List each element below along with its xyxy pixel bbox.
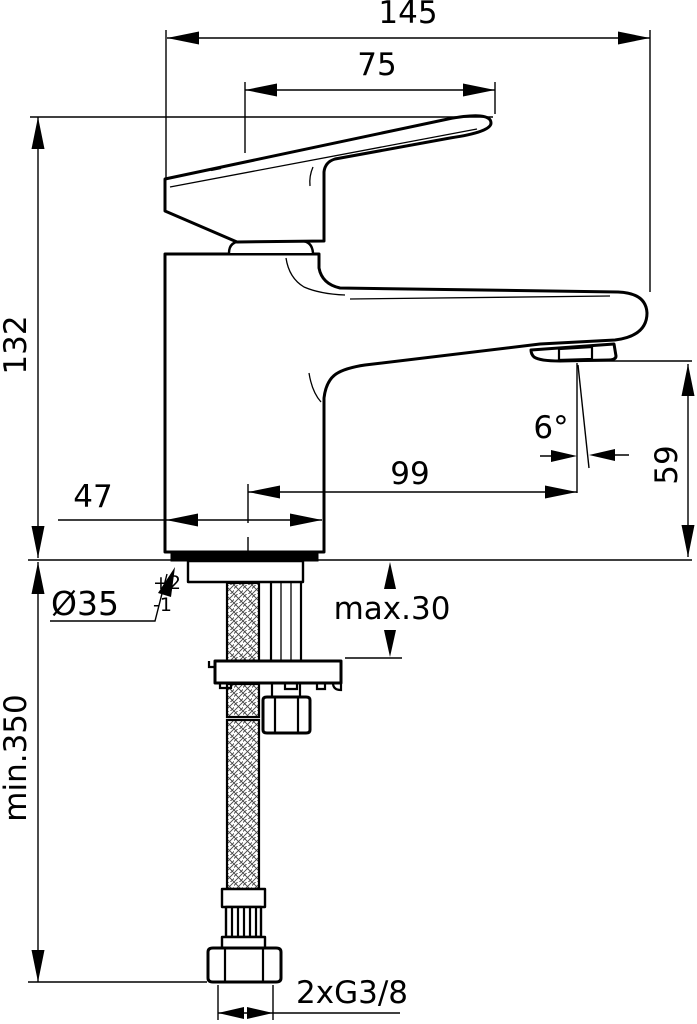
- label-spout-angle: 6°: [533, 410, 568, 446]
- mounting-stud-inner: [281, 583, 291, 660]
- arrow-145-right: [618, 32, 650, 45]
- arrow-145-left: [167, 32, 199, 45]
- arrow-99-right: [545, 486, 577, 499]
- label-spout-height: 59: [649, 445, 685, 484]
- technical-drawing-canvas: 145 75 132 47 99 6° 59 Ø35 +2 -1 max.30 …: [0, 0, 697, 1024]
- upper-washer: [188, 561, 303, 582]
- label-hole-diameter: Ø35: [51, 584, 119, 623]
- label-hole-tolerance-lower: -1: [153, 594, 172, 616]
- arrow-angle-right: [589, 449, 615, 461]
- dimension-lines: [38, 38, 688, 1013]
- braided-hose-lower: [227, 720, 259, 889]
- arrow-75-right: [463, 84, 495, 97]
- arrow-59-bottom: [682, 525, 695, 557]
- hose-ferrule-lower: [222, 937, 265, 948]
- arrow-75-left: [245, 84, 277, 97]
- label-spout-reach: 99: [390, 456, 429, 492]
- mounting-plate: [215, 661, 341, 683]
- extension-lines: [28, 30, 692, 1020]
- arrow-min350-bottom: [32, 950, 45, 982]
- hose-ferrule-upper: [222, 889, 265, 907]
- connection-nut: [208, 948, 281, 982]
- arrow-132-bottom: [32, 526, 45, 558]
- label-max-mounting-thickness: max.30: [334, 591, 451, 627]
- label-handle-projection: 75: [357, 47, 396, 83]
- arrow-max30-top: [384, 562, 396, 589]
- arrow-min350-top: [32, 562, 45, 594]
- braided-hose-upper: [227, 583, 259, 662]
- label-supply-connection: 2xG3/8: [296, 975, 408, 1011]
- arrow-angle-left: [551, 450, 577, 462]
- arrow-max30-bottom: [384, 630, 396, 657]
- arrowheads: [32, 32, 695, 1020]
- faucet-body-group: [165, 116, 647, 982]
- arrow-59-top: [682, 364, 695, 396]
- arrow-g38-right: [247, 1007, 273, 1019]
- label-hole-tolerance-upper: +2: [153, 572, 181, 594]
- arrow-132-top: [32, 117, 45, 149]
- label-min-hose-length: min.350: [0, 694, 34, 821]
- arrow-g38-left: [218, 1007, 244, 1019]
- aerator: [531, 344, 616, 361]
- mounting-hex-nut: [263, 697, 310, 733]
- label-overall-length: 145: [378, 0, 437, 31]
- label-total-height: 132: [0, 315, 34, 374]
- stream-angle-line: [578, 365, 589, 468]
- faucet-dimension-drawing: 145 75 132 47 99 6° 59 Ø35 +2 -1 max.30 …: [0, 0, 697, 1024]
- label-base-depth: 47: [73, 479, 112, 515]
